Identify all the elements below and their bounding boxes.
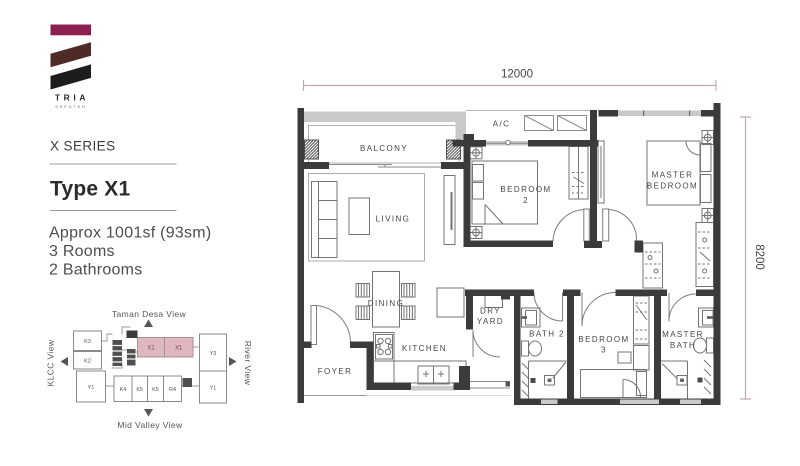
svg-text:12000: 12000 (501, 69, 533, 81)
svg-text:Approx 1001sf (93sm): Approx 1001sf (93sm) (49, 225, 211, 242)
svg-text:A/C: A/C (493, 120, 511, 129)
svg-text:2: 2 (523, 196, 529, 205)
svg-text:YARD: YARD (477, 317, 504, 326)
svg-text:K2: K2 (84, 359, 91, 365)
svg-text:BALCONY: BALCONY (360, 144, 408, 153)
svg-text:KITCHEN: KITCHEN (402, 344, 447, 353)
svg-text:Y1: Y1 (210, 386, 217, 392)
svg-text:LIVING: LIVING (376, 215, 411, 224)
svg-text:Taman Desa View: Taman Desa View (112, 309, 187, 319)
svg-text:Y1: Y1 (88, 385, 95, 391)
svg-text:K5: K5 (152, 387, 159, 393)
svg-text:3: 3 (601, 346, 607, 355)
svg-text:K4: K4 (120, 387, 127, 393)
svg-text:MASTER: MASTER (652, 171, 694, 180)
svg-text:BEDROOM: BEDROOM (578, 335, 629, 344)
svg-text:2 Bathrooms: 2 Bathrooms (49, 262, 142, 279)
svg-text:BATH: BATH (670, 341, 696, 350)
svg-text:Mid Valley View: Mid Valley View (117, 420, 183, 430)
svg-text:River View: River View (243, 341, 253, 386)
svg-text:TRIA: TRIA (55, 93, 89, 103)
svg-text:X1: X1 (175, 346, 183, 352)
svg-text:Y3: Y3 (210, 351, 217, 357)
svg-text:8200: 8200 (753, 244, 765, 270)
svg-text:BATH 2: BATH 2 (529, 330, 565, 339)
svg-text:MASTER: MASTER (662, 330, 704, 339)
svg-text:R4: R4 (169, 387, 176, 393)
svg-text:KLCC View: KLCC View (46, 339, 56, 386)
svg-text:K3: K3 (84, 339, 91, 345)
svg-text:DINING: DINING (368, 299, 404, 308)
svg-text:FOYER: FOYER (318, 367, 353, 376)
svg-text:Type X1: Type X1 (50, 178, 130, 201)
svg-text:SEPUTEH: SEPUTEH (55, 104, 87, 109)
svg-text:BEDROOM: BEDROOM (647, 182, 698, 191)
svg-text:K5: K5 (136, 387, 143, 393)
svg-text:X SERIES: X SERIES (50, 139, 115, 154)
svg-text:BEDROOM: BEDROOM (500, 185, 551, 194)
svg-text:X1: X1 (147, 346, 155, 352)
svg-text:DRY: DRY (480, 307, 501, 316)
svg-text:3 Rooms: 3 Rooms (49, 243, 115, 260)
